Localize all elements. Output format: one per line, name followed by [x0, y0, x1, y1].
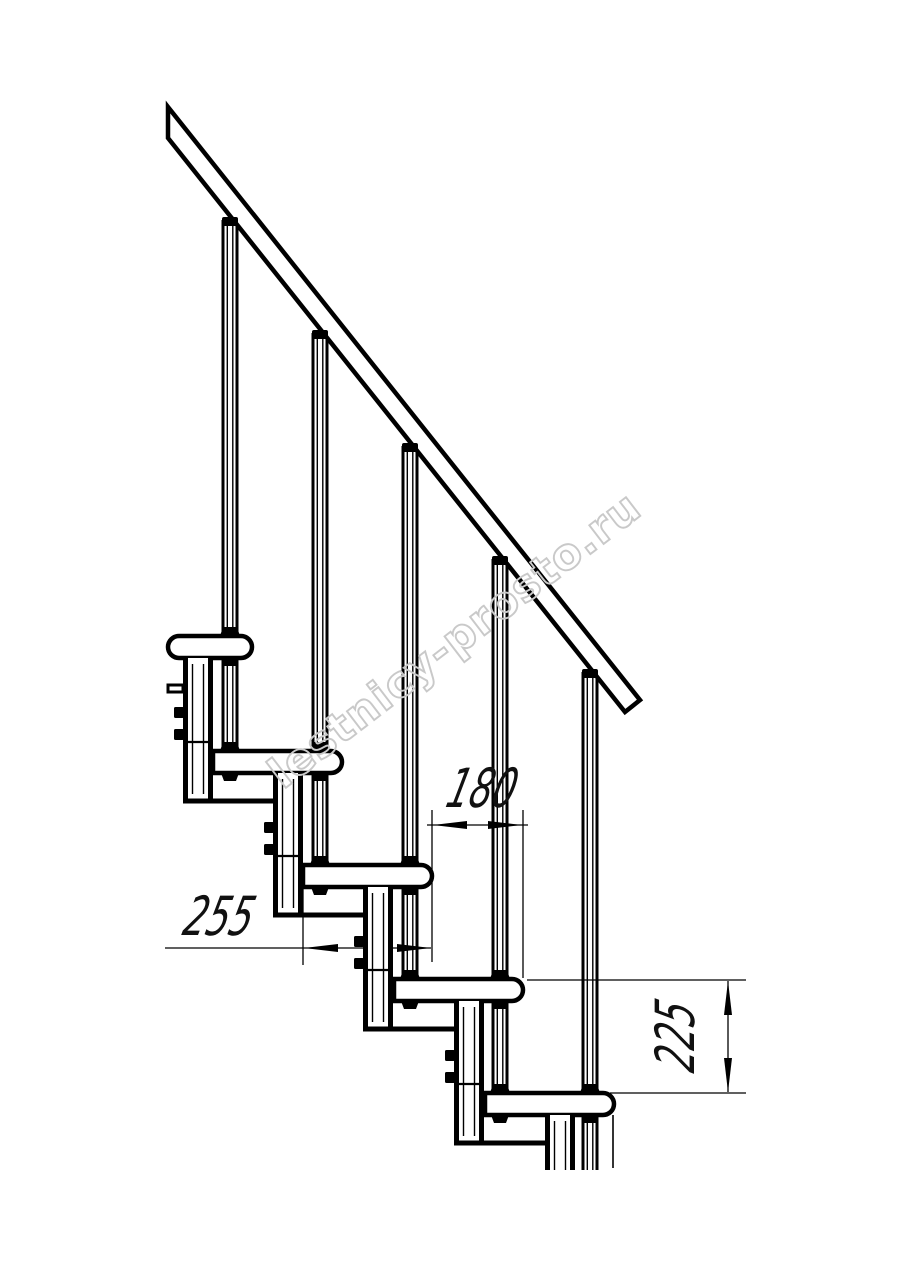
- baluster-1: [223, 220, 237, 636]
- support-column-5: [545, 1115, 575, 1170]
- support-column-4: [454, 1001, 484, 1143]
- rod-3: [403, 887, 417, 979]
- technical-drawing-page: 180 255 225 lestnicy-prosto.ru: [0, 0, 914, 1280]
- rail-mount-3: [402, 443, 418, 452]
- baluster-5: [583, 672, 597, 1093]
- arrow-depth-left: [304, 944, 338, 952]
- rail-mount-5: [582, 669, 598, 678]
- rod-2: [313, 773, 327, 865]
- baluster-2: [313, 333, 327, 751]
- rail-mount-4: [492, 556, 508, 565]
- arrow-going-left: [433, 821, 467, 829]
- dim-depth-label: 255: [178, 886, 262, 948]
- tread-4: [394, 979, 523, 1001]
- tread-3: [303, 865, 432, 887]
- rod-1: [223, 658, 237, 751]
- dim-going-label: 180: [441, 758, 525, 820]
- support-column-1: [183, 658, 213, 801]
- rod-5: [583, 1115, 597, 1170]
- rail-mount-1: [222, 217, 238, 226]
- tread-1: [168, 636, 252, 658]
- dim-rise-label: 225: [645, 994, 707, 1078]
- rail-mount-2: [312, 330, 328, 339]
- arrow-rise-top: [724, 981, 732, 1015]
- bracket-stub-0: [168, 685, 183, 692]
- support-column-3: [363, 887, 393, 1029]
- staircase-drawing: 180 255 225 lestnicy-prosto.ru: [0, 0, 914, 1280]
- rod-4: [493, 1001, 507, 1093]
- tread-5: [485, 1093, 614, 1115]
- arrow-rise-bottom: [724, 1058, 732, 1092]
